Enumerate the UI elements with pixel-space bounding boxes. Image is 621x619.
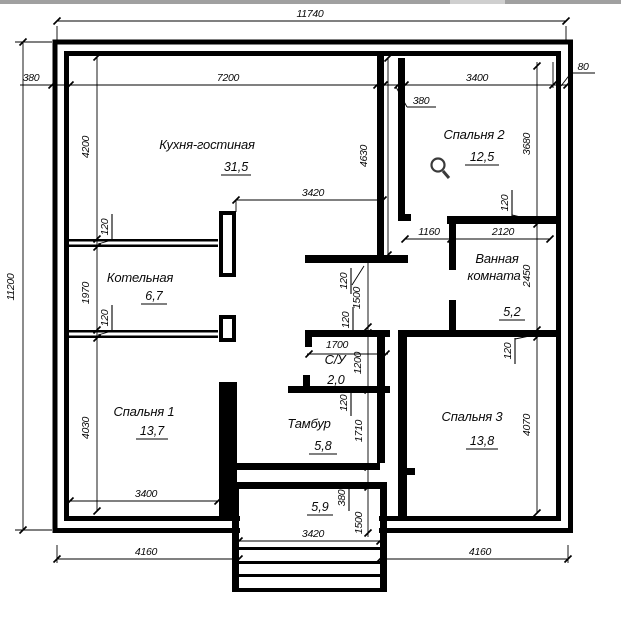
room-label-boiler: Котельная — [107, 270, 173, 285]
room-label-bedroom3: Спальня 3 — [442, 409, 504, 424]
dimension-ticks — [20, 18, 572, 563]
wall-wc-bottom — [288, 386, 390, 393]
dim-hall-wall-bottom: 120 — [340, 311, 352, 328]
dim-porch-wall: 380 — [336, 489, 348, 506]
wall-bedroom2-left-cap — [405, 214, 411, 221]
dim-wall-p2: 120 — [99, 309, 111, 326]
dim-bath-height: 2450 — [521, 264, 533, 288]
room-area-kitchen: 31,5 — [224, 160, 248, 174]
porch-step-3 — [232, 574, 387, 577]
dim-bath-wall-bottom: 120 — [502, 342, 514, 359]
floorplan-drawing: 11740 380 7200 3400 80 380 3420 1160 212… — [0, 0, 621, 619]
dim-wc-height: 1200 — [352, 351, 364, 374]
room-area-boiler: 6,7 — [145, 289, 163, 303]
dim-kitchen-pass: 3420 — [302, 187, 325, 199]
dim-hall-width: 1500 — [351, 286, 363, 309]
wall-tambour-bottom-outer — [232, 482, 387, 489]
room-label-bedroom1: Спальня 1 — [114, 404, 175, 419]
wall-tambour-bottom-inner — [237, 463, 380, 470]
dim-bedroom3-height: 4070 — [521, 413, 533, 436]
magnifier-cursor-icon — [432, 159, 450, 179]
room-label-wc: С/У — [325, 352, 348, 367]
room-area-bathroom: 5,2 — [503, 305, 520, 319]
dim-wall-mid: 380 — [413, 95, 430, 107]
room-label-bathroom-line2: комната — [467, 268, 520, 283]
porch-step-edge — [232, 588, 387, 592]
room-area-porch: 5,9 — [311, 500, 328, 514]
room-area-bedroom3: 13,8 — [470, 434, 494, 448]
dim-wc-width: 1700 — [326, 339, 349, 351]
exterior-wall-outer-leaf — [55, 42, 571, 531]
wall-bathroom-left-upper — [449, 216, 456, 270]
dim-bedroom2-height: 3680 — [521, 132, 533, 155]
dim-bath-width: 2120 — [491, 226, 515, 238]
wall-boiler-bedroom1-partition-a — [69, 330, 218, 333]
dim-wall-left: 380 — [23, 72, 40, 84]
dim-porch-height: 1500 — [353, 511, 365, 534]
dim-wall-p1: 120 — [99, 218, 111, 235]
dim-tambour-height: 1710 — [353, 419, 365, 442]
wall-wc-door-jamb-top — [305, 337, 312, 347]
room-label-bedroom2: Спальня 2 — [444, 127, 506, 142]
wall-kitchen-boiler-partition-a — [69, 239, 218, 242]
porch-steps — [232, 547, 387, 592]
wall-boiler-bedroom1-partition-b — [69, 336, 218, 339]
dim-bath-wall-top: 120 — [499, 194, 511, 211]
wall-kitchen-boiler-partition-b — [69, 245, 218, 248]
dim-total-width: 11740 — [297, 8, 324, 20]
dim-wc-wall: 120 — [338, 394, 350, 411]
wall-bedroom3-left — [398, 330, 407, 516]
room-area-tambour: 5,8 — [314, 439, 331, 453]
wall-wc-door-jamb-bottom — [303, 375, 310, 386]
wall-bedroom3-door-jamb — [407, 468, 415, 475]
room-label-tambour: Тамбур — [287, 416, 330, 431]
wall-bathroom-top — [447, 216, 556, 224]
dim-bath-pass: 1160 — [418, 226, 440, 238]
porch-step-1 — [232, 547, 387, 550]
dimension-lines — [15, 21, 568, 563]
wall-wc-top — [305, 330, 390, 337]
dim-bottom-right: 4160 — [469, 546, 492, 558]
room-label-bathroom-line1: Ванная — [475, 251, 518, 266]
dim-hall-wall-top: 120 — [338, 272, 350, 289]
dim-bedroom1-height: 4030 — [80, 416, 92, 439]
room-area-bedroom1: 13,7 — [140, 424, 165, 438]
room-area-wc: 2,0 — [326, 373, 344, 387]
room-area-bedroom2: 12,5 — [470, 150, 494, 164]
porch-step-2 — [232, 561, 387, 564]
dim-boiler-height: 1970 — [80, 281, 92, 304]
pier-spine-middle — [221, 317, 234, 340]
dim-kitchen-height: 4200 — [80, 135, 92, 158]
floorplan-canvas: 11740 380 7200 3400 80 380 3420 1160 212… — [0, 0, 621, 619]
dim-bottom-left: 4160 — [135, 546, 158, 558]
dim-kitchen-right-height: 4630 — [358, 144, 370, 167]
wall-hall-top — [305, 255, 408, 263]
pier-kitchen-island — [221, 213, 234, 275]
dim-bedroom1-width: 3400 — [135, 488, 158, 500]
dim-kitchen-width: 7200 — [217, 72, 240, 84]
dim-wall-right: 80 — [577, 61, 589, 73]
dim-bedroom2-width: 3400 — [466, 72, 489, 84]
dim-total-height: 11200 — [5, 273, 17, 300]
dim-porch-width: 3420 — [302, 528, 325, 540]
room-label-kitchen: Кухня-гостиная — [159, 137, 255, 152]
